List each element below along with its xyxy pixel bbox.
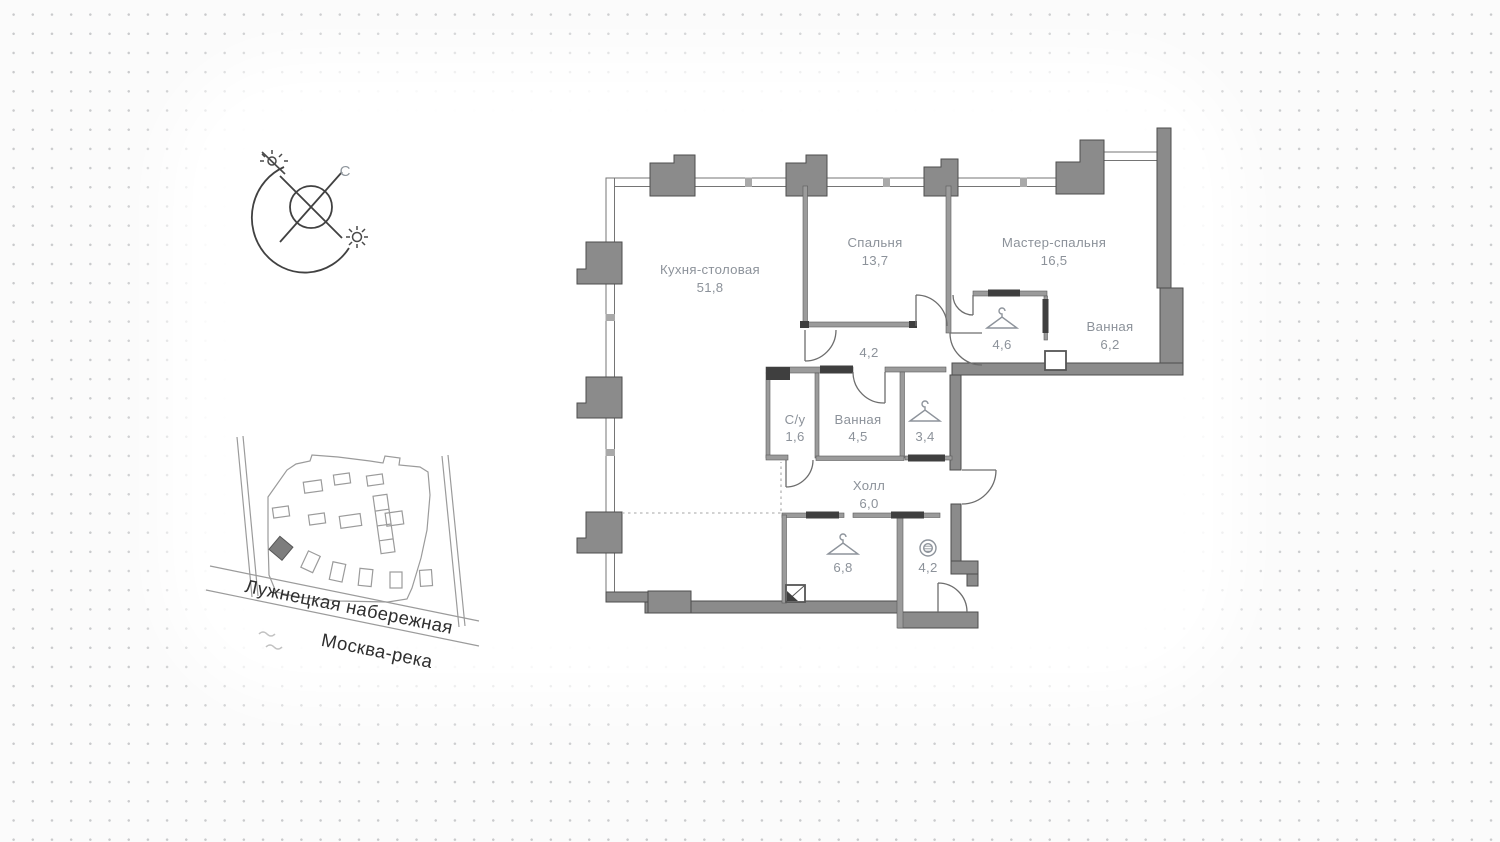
kitchen-to-corridor-door (805, 330, 836, 361)
sun-icon (346, 226, 368, 248)
room-bathroom-area: 4,5 (848, 429, 867, 444)
ventilation-shaft (786, 585, 805, 602)
washing-machine-icon (920, 540, 936, 556)
hall-to-entry-door (962, 470, 996, 504)
room-bedroom-area: 13,7 (862, 253, 889, 268)
bedroom-door (916, 295, 947, 326)
bathroom-door (853, 372, 885, 403)
plot-boundary (268, 455, 430, 602)
room-wc-area: 1,6 (785, 429, 804, 444)
hanger-icon (828, 534, 858, 554)
room-wc-name: С/у (785, 412, 806, 427)
room-laundry-area: 4,2 (918, 560, 937, 575)
room-kitchen-name: Кухня-столовая (660, 262, 760, 277)
site-map: Лужнецкая набережная Москва-река (206, 436, 479, 672)
room-hall-area: 6,0 (859, 496, 878, 511)
dotted-zoning-line (622, 462, 781, 513)
wc-door (786, 460, 813, 487)
inner-walls (766, 186, 1048, 628)
master-bedroom-door (953, 295, 973, 315)
room-closet-area: 3,4 (915, 429, 934, 444)
plan-canvas: С (0, 0, 1500, 842)
side-road-right (442, 455, 465, 627)
room-wardrobe-master-area: 4,6 (992, 337, 1011, 352)
room-corridor-area: 4,2 (859, 345, 878, 360)
bathroom-shaft-box (1045, 351, 1066, 370)
street-label: Лужнецкая набережная (243, 575, 455, 638)
outer-walls (606, 128, 1183, 628)
room-bath-master-area: 6,2 (1100, 337, 1119, 352)
room-master-name: Мастер-спальня (1002, 235, 1106, 250)
room-kitchen-area: 51,8 (697, 280, 724, 295)
no-sun-icon (260, 150, 288, 174)
room-wardrobe-hall-area: 6,8 (833, 560, 852, 575)
structural-columns (577, 140, 1104, 613)
room-bathroom-name: Ванная (835, 412, 882, 427)
building-footprints (272, 473, 432, 588)
room-bedroom-name: Спальня (847, 235, 902, 250)
room-hall-name: Холл (853, 478, 885, 493)
north-label: С (340, 163, 351, 180)
wave-icon (259, 632, 282, 649)
hanger-icon (987, 308, 1017, 328)
room-master-area: 16,5 (1041, 253, 1068, 268)
floor-plan: Кухня-столовая 51,8 Спальня 13,7 Мастер-… (577, 128, 1183, 628)
entrance-door (938, 583, 967, 612)
corridor-to-wardrobe-door (950, 333, 982, 365)
room-bath-master-name: Ванная (1087, 319, 1134, 334)
river-label: Москва-река (320, 629, 435, 672)
highlighted-building (269, 536, 293, 560)
compass-rose: С (252, 150, 368, 273)
side-road-left (237, 436, 258, 597)
hanger-icon (910, 401, 940, 421)
